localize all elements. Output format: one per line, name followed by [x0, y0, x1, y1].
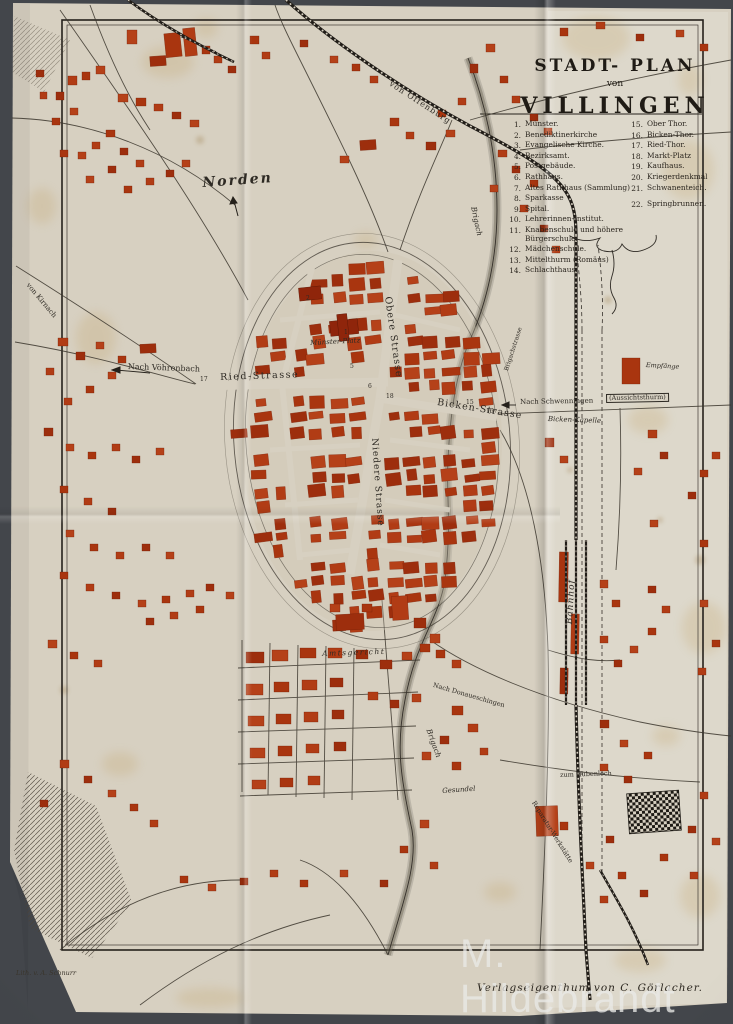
legend-item-number: 15. — [630, 120, 643, 129]
town-building — [311, 590, 322, 603]
legend-column-left: 1.Münster.2.Benediktinerkirche3.Evangeli… — [508, 120, 630, 277]
town-building — [349, 277, 366, 291]
town-building — [421, 517, 439, 530]
map-title-line1: STADT- PLAN — [500, 56, 730, 76]
town-building — [403, 562, 419, 574]
suburb-building — [426, 142, 436, 150]
town-building — [479, 500, 493, 511]
legend-item-number: 5. — [508, 162, 521, 171]
town-building — [388, 578, 404, 588]
town-building — [257, 501, 271, 514]
suburb-building — [86, 176, 94, 183]
suburb-building — [162, 596, 170, 603]
town-building — [406, 469, 417, 481]
town-building — [331, 517, 348, 530]
town-building — [331, 485, 344, 498]
town-building — [482, 519, 496, 527]
suburb-building — [96, 342, 104, 349]
legend-item-label: Kriegerdenkmal — [647, 173, 708, 182]
suburb-building — [302, 680, 317, 690]
town-building — [423, 457, 436, 469]
suburb-building — [156, 448, 164, 455]
town-building — [331, 426, 344, 437]
suburb-building — [150, 55, 167, 66]
legend-item-left-14: 14.Schlachthaus. — [508, 266, 630, 275]
legend-item-number: 22. — [630, 200, 643, 209]
legend-item-label: Spital. — [525, 205, 549, 214]
suburb-building — [618, 872, 626, 879]
town-building — [406, 517, 423, 527]
town-building — [231, 429, 248, 439]
town-building — [276, 487, 286, 500]
town-building — [422, 336, 438, 349]
town-building — [251, 470, 266, 479]
legend-item-number: 7. — [508, 184, 521, 193]
town-building — [442, 382, 456, 395]
legend-item-number: 13. — [508, 256, 521, 265]
suburb-building — [92, 142, 100, 149]
town-building — [440, 425, 456, 440]
suburb-building — [142, 544, 150, 551]
town-building — [443, 454, 456, 466]
legend: 1.Münster.2.Benediktinerkirche3.Evangeli… — [508, 120, 730, 277]
legend-item-left-13: 13.Mittelthurm (Romäus) — [508, 256, 630, 265]
town-building — [350, 606, 360, 614]
lithographer-credit: Lith. v. A. Schnurr — [16, 969, 76, 977]
town-building — [464, 366, 477, 378]
suburb-building — [84, 776, 92, 783]
legend-item-number: 2. — [508, 131, 521, 140]
legend-item-number: 8. — [508, 194, 521, 203]
suburb-building — [76, 352, 85, 360]
town-building — [311, 455, 326, 468]
suburb-building — [700, 44, 708, 51]
suburb-building — [420, 820, 429, 828]
suburb-building — [66, 444, 74, 451]
suburb-building — [596, 22, 605, 29]
suburb-building — [600, 896, 608, 903]
town-building — [424, 368, 435, 378]
town-building — [254, 488, 268, 499]
suburb-building — [84, 498, 92, 505]
suburb-building — [336, 613, 365, 630]
legend-item-right-8: 22.Springbrunnen. — [630, 200, 730, 209]
town-building — [405, 353, 420, 365]
suburb-building — [250, 36, 259, 44]
town-building — [306, 353, 325, 365]
town-building — [406, 485, 421, 496]
suburb-building — [58, 338, 68, 346]
town-building — [312, 472, 326, 483]
town-building — [464, 430, 474, 438]
suburb-building — [300, 880, 308, 887]
suburb-building — [330, 604, 340, 612]
town-building — [289, 426, 304, 439]
suburb-building — [436, 650, 445, 658]
suburb-building — [182, 160, 190, 167]
suburb-building — [440, 736, 449, 744]
suburb-building — [60, 760, 69, 768]
suburb-building — [68, 76, 77, 85]
suburb-building — [470, 64, 478, 73]
town-building — [407, 276, 418, 284]
town-building — [407, 535, 422, 543]
suburb-building — [120, 148, 128, 155]
suburb-building — [458, 98, 466, 105]
town-building — [331, 575, 345, 585]
suburb-building — [108, 166, 116, 173]
legend-item-left-10: 10.Lehrerinnen-Institut. — [508, 215, 630, 224]
suburb-building — [380, 880, 388, 887]
town-building — [424, 474, 435, 484]
suburb-building — [340, 156, 349, 163]
suburb-building — [700, 470, 708, 477]
suburb-building — [700, 540, 708, 547]
suburb-building — [70, 108, 78, 115]
suburb-building — [452, 660, 461, 668]
town-building — [352, 590, 367, 600]
suburb-building — [380, 660, 392, 669]
town-building — [349, 294, 363, 304]
town-building — [462, 381, 473, 391]
town-building — [408, 293, 421, 303]
town-building — [428, 425, 441, 434]
suburb-building — [586, 862, 594, 869]
suburb-building — [82, 72, 90, 80]
town-building — [272, 338, 287, 349]
town-building — [273, 544, 284, 558]
town-building — [425, 594, 436, 602]
suburb-building — [36, 70, 44, 77]
suburb-building — [94, 660, 102, 667]
suburb-building — [402, 652, 412, 660]
suburb-building — [86, 386, 94, 393]
town-building — [351, 427, 361, 439]
town-building — [331, 398, 348, 409]
town-building — [442, 515, 457, 530]
town-building — [410, 426, 423, 437]
town-building — [387, 532, 401, 543]
legend-item-number: 3. — [508, 141, 521, 150]
town-building — [445, 487, 457, 496]
map-number-6: 6 — [368, 384, 372, 390]
map-number-2: 2 — [306, 296, 310, 302]
suburb-building — [250, 748, 265, 758]
legend-item-left-7: 7.Altes Rathhaus (Sammlung) — [508, 184, 630, 193]
town-building — [425, 563, 437, 574]
suburb-building — [48, 640, 57, 648]
town-building — [422, 414, 439, 425]
suburb-building — [164, 32, 182, 58]
suburb-building — [186, 590, 194, 597]
grid-block — [627, 790, 682, 834]
town-building — [479, 471, 495, 480]
town-building — [256, 335, 268, 347]
suburb-building — [700, 600, 708, 607]
legend-item-number: 6. — [508, 173, 521, 182]
legend-item-label: Ried-Thor. — [647, 141, 685, 150]
town-building — [368, 589, 384, 602]
suburb-building — [712, 640, 720, 647]
suburb-building — [648, 586, 656, 593]
legend-item-left-6: 6.Rathhaus. — [508, 173, 630, 182]
legend-item-number: 16. — [630, 131, 643, 140]
suburb-building — [166, 170, 174, 177]
town-building — [307, 483, 326, 497]
suburb-building — [422, 752, 431, 760]
legend-item-left-12: 12.Mädchenschule. — [508, 245, 630, 254]
suburb-building — [630, 646, 638, 653]
suburb-building — [600, 636, 608, 643]
legend-item-right-4: 18.Markt-Platz — [630, 152, 730, 161]
suburb-building — [650, 520, 658, 527]
suburb-building — [154, 104, 163, 111]
legend-item-right-7: 21.Schwanenteich. — [630, 184, 730, 193]
suburb-building — [600, 720, 609, 728]
legend-item-label: Benediktinerkirche — [525, 131, 597, 140]
label-amtsgericht: Amtsgericht — [322, 648, 385, 658]
town-building — [404, 367, 420, 379]
suburb-building — [272, 650, 288, 661]
suburb-building — [190, 120, 199, 127]
photo-watermark: M. Hildebrandt — [460, 932, 733, 1022]
suburb-building — [560, 822, 568, 830]
suburb-building — [362, 604, 372, 612]
town-building — [481, 427, 499, 440]
suburb-building — [360, 139, 377, 150]
suburb-building — [66, 530, 74, 537]
town-building — [367, 293, 383, 303]
legend-item-label: Altes Rathhaus (Sammlung) — [525, 184, 630, 193]
suburb-building — [246, 652, 264, 663]
suburb-building — [60, 150, 68, 157]
legend-item-left-11: 11.Knabenschule und höhere Bürgerschule. — [508, 226, 630, 243]
suburb-building — [40, 92, 47, 99]
suburb-building — [206, 584, 214, 591]
legend-item-label: Bicken-Thor. — [647, 131, 694, 140]
town-building — [482, 352, 500, 364]
suburb-building — [106, 130, 115, 137]
label-nach-schwenningen: Nach Schwenningen — [520, 398, 593, 406]
suburb-building — [490, 185, 498, 192]
town-building — [309, 324, 322, 336]
town-building — [463, 337, 481, 349]
map-number-15: 15 — [466, 400, 474, 406]
legend-item-number: 4. — [508, 152, 521, 161]
suburb-building — [712, 452, 720, 459]
town-building — [405, 324, 416, 334]
legend-item-label: Springbrunnen. — [647, 200, 706, 209]
suburb-building — [46, 368, 54, 375]
legend-item-number: 21. — [630, 184, 643, 193]
suburb-building — [498, 150, 507, 157]
legend-item-number: 14. — [508, 266, 521, 275]
legend-item-number: 20. — [630, 173, 643, 182]
suburb-building — [698, 668, 706, 675]
legend-item-label: Rathhaus. — [525, 173, 563, 182]
town-building — [388, 519, 399, 530]
suburb-building — [612, 600, 620, 607]
town-building — [480, 381, 496, 394]
legend-item-label: Postgebäude. — [525, 162, 575, 171]
suburb-building — [634, 468, 642, 475]
town-building — [481, 364, 492, 377]
suburb-building — [390, 700, 399, 708]
legend-item-label: Bezirksamt. — [525, 152, 570, 161]
label-empfaenge: Empfänge — [646, 362, 680, 370]
suburb-building — [648, 430, 657, 438]
legend-column-right: 15.Ober Thor.16.Bicken-Thor.17.Ried-Thor… — [630, 120, 730, 277]
suburb-building — [274, 682, 289, 692]
legend-item-label: Mittelthurm (Romäus) — [525, 256, 609, 265]
town-building — [290, 411, 307, 422]
suburb-building — [644, 752, 652, 759]
legend-item-left-5: 5.Postgebäude. — [508, 162, 630, 171]
town-building — [481, 485, 494, 496]
town-building — [250, 424, 268, 438]
suburb-building — [64, 398, 72, 405]
suburb-building — [306, 744, 319, 753]
suburb-building — [180, 876, 188, 883]
suburb-building — [262, 52, 270, 59]
suburb-building — [127, 30, 137, 44]
suburb-building — [136, 160, 144, 167]
suburb-building — [116, 552, 124, 559]
legend-item-label: Evangelische Kirche. — [525, 141, 604, 150]
suburb-building — [334, 742, 346, 751]
town-building — [330, 563, 346, 574]
legend-item-left-1: 1.Münster. — [508, 120, 630, 129]
town-building — [351, 576, 364, 590]
suburb-building — [560, 456, 568, 463]
suburb-building — [88, 452, 96, 459]
suburb-building — [78, 152, 86, 159]
suburb-building — [56, 92, 64, 100]
suburb-building — [430, 862, 438, 869]
town-building — [334, 593, 344, 604]
suburb-building — [270, 870, 278, 877]
town-building — [408, 336, 424, 347]
suburb-building — [112, 444, 120, 451]
legend-item-number: 17. — [630, 141, 643, 150]
map-title-line2: von — [500, 79, 730, 89]
suburb-building — [468, 724, 478, 732]
legend-item-left-4: 4.Bezirksamt. — [508, 152, 630, 161]
town-building — [409, 382, 419, 392]
suburb-building — [648, 628, 656, 635]
suburb-building — [660, 854, 668, 861]
legend-item-label: Münster. — [525, 120, 558, 129]
map-number-5: 5 — [350, 364, 354, 370]
suburb-building — [246, 684, 263, 695]
suburb-building — [70, 652, 78, 659]
town-building — [421, 529, 437, 543]
town-building — [443, 531, 457, 545]
suburb-building — [636, 34, 644, 41]
legend-item-number: 9. — [508, 205, 521, 214]
suburb-building — [170, 612, 178, 619]
label-aussichtsthurm: (Aussichtsthurm) — [606, 393, 669, 403]
legend-item-number: 1. — [508, 120, 521, 129]
legend-item-right-6: 20.Kriegerdenkmal — [630, 173, 730, 182]
town-building — [463, 500, 477, 512]
town-building — [311, 534, 321, 542]
suburb-building — [118, 356, 126, 363]
suburb-building — [40, 800, 48, 807]
legend-item-label: Knabenschule und höhere Bürgerschule. — [525, 226, 630, 243]
suburb-building — [600, 580, 608, 588]
town-building — [464, 352, 480, 366]
suburb-building — [676, 30, 684, 37]
suburb-building — [132, 456, 140, 463]
suburb-building — [304, 712, 318, 722]
town-building — [389, 561, 404, 569]
suburb-building — [430, 634, 440, 643]
suburb-building — [414, 618, 426, 628]
legend-item-left-9: 9.Spital. — [508, 205, 630, 214]
suburb-building — [606, 836, 614, 843]
town-building — [445, 336, 460, 348]
suburb-building — [138, 600, 146, 607]
suburb-building — [390, 118, 399, 126]
suburb-building — [96, 66, 105, 74]
legend-item-left-8: 8.Sparkasse — [508, 194, 630, 203]
town-building — [332, 474, 345, 483]
town-building — [347, 473, 360, 484]
legend-item-label: Lehrerinnen-Institut. — [525, 215, 604, 224]
legend-item-label: Mädchenschule. — [525, 245, 586, 254]
suburb-building — [124, 186, 132, 193]
suburb-building — [252, 780, 266, 789]
suburb-building — [248, 716, 264, 726]
town-building — [385, 472, 402, 486]
town-building — [424, 306, 440, 315]
town-building — [309, 396, 324, 409]
legend-item-left-3: 3.Evangelische Kirche. — [508, 141, 630, 150]
suburb-building — [172, 112, 181, 119]
suburb-building — [108, 372, 116, 379]
suburb-building — [300, 40, 308, 47]
town-building — [349, 263, 366, 275]
legend-item-right-5: 19.Kaufhaus. — [630, 162, 730, 171]
suburb-building — [208, 884, 216, 891]
suburb-building — [60, 486, 68, 493]
suburb-building — [545, 438, 554, 447]
suburb-building — [560, 28, 568, 36]
suburb-building — [280, 778, 293, 787]
suburb-building — [278, 746, 292, 756]
suburb-building — [340, 870, 348, 877]
suburb-building — [452, 762, 461, 770]
town-building — [293, 396, 304, 407]
suburb-building — [308, 776, 320, 785]
suburb-building — [391, 595, 409, 620]
suburb-building — [452, 706, 463, 715]
town-building — [370, 278, 382, 289]
suburb-building — [112, 592, 120, 599]
suburb-building — [420, 644, 430, 652]
town-building — [368, 530, 380, 539]
suburb-building — [332, 710, 344, 719]
suburb-building — [108, 790, 116, 797]
town-building — [311, 575, 324, 586]
town-building — [441, 349, 455, 359]
town-building — [441, 576, 456, 588]
suburb-building — [412, 694, 421, 702]
suburb-building — [228, 66, 236, 73]
town-building — [332, 274, 343, 286]
suburb-building — [330, 56, 338, 63]
